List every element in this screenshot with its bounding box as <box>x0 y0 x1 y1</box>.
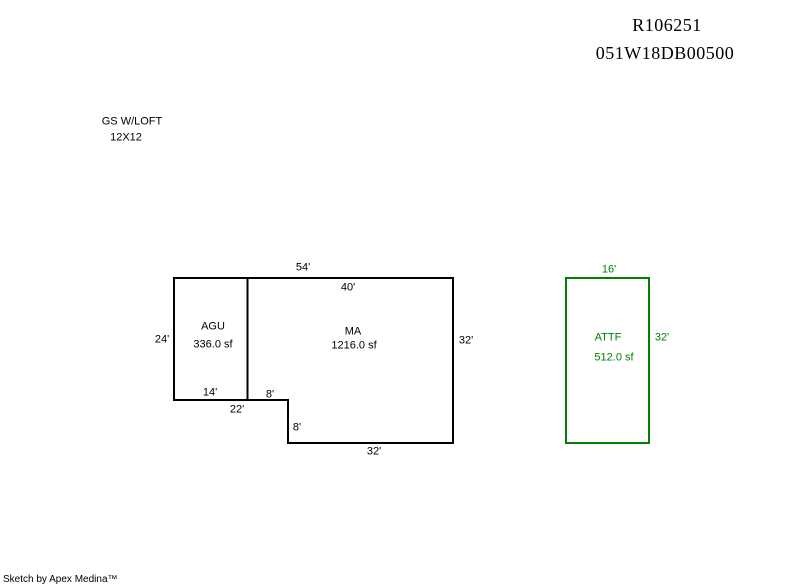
header-parcel-id: 051W18DB00500 <box>596 44 735 62</box>
dim-top-inner-40: 40' <box>341 283 355 294</box>
dim-notch-top-8: 8' <box>266 390 274 401</box>
dim-inner-bottom-14: 14' <box>203 388 217 399</box>
dim-top-54: 54' <box>296 263 310 274</box>
section-ma-code: MA <box>345 327 362 338</box>
attf-code: ATTF <box>595 333 622 344</box>
section-agu-code: AGU <box>201 322 225 333</box>
section-agu-area: 336.0 sf <box>193 340 232 351</box>
main-building-outline <box>174 278 453 443</box>
attf-dim-top-16: 16' <box>602 265 616 276</box>
attf-dim-right-32: 32' <box>655 333 669 344</box>
section-ma-area: 1216.0 sf <box>331 341 376 352</box>
dim-left-24: 24' <box>155 335 169 346</box>
dim-bottom-32: 32' <box>367 447 381 458</box>
sketch-drawing <box>0 0 800 587</box>
annotation-gs-loft-size: 12X12 <box>110 133 142 144</box>
sketch-canvas: R106251 051W18DB00500 GS W/LOFT 12X12 54… <box>0 0 800 587</box>
dim-right-32: 32' <box>459 336 473 347</box>
sketch-credit: Sketch by Apex Medina™ <box>3 575 118 585</box>
annotation-gs-loft: GS W/LOFT <box>102 117 163 128</box>
attf-area: 512.0 sf <box>594 353 633 364</box>
header-account-id: R106251 <box>632 16 702 34</box>
dim-outer-bottom-22: 22' <box>230 405 244 416</box>
dim-notch-side-8: 8' <box>293 423 301 434</box>
